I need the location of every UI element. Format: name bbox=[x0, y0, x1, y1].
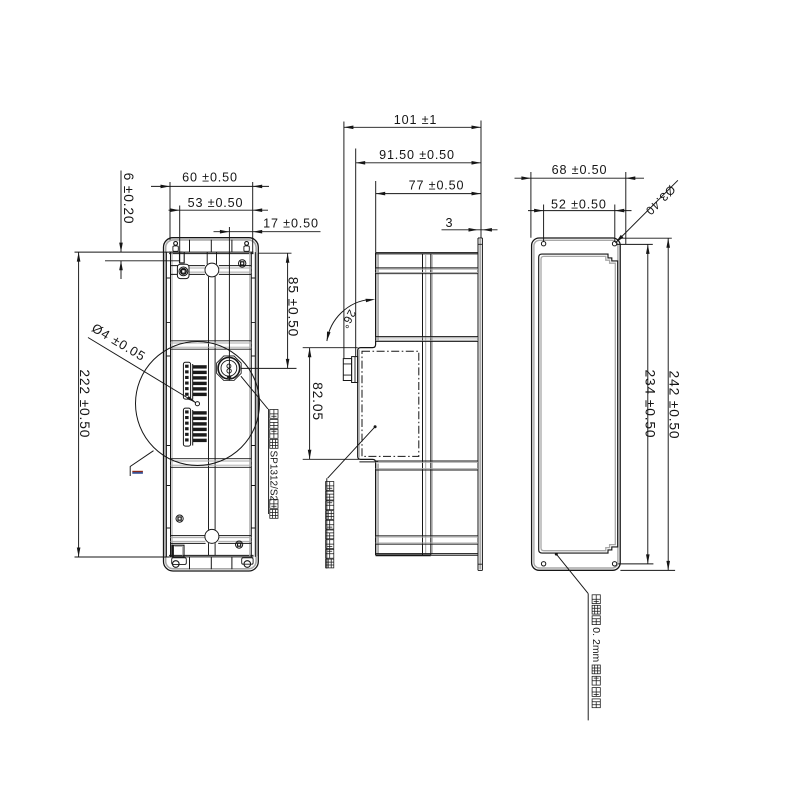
svg-text:60 ±0.50: 60 ±0.50 bbox=[182, 171, 238, 185]
svg-text:91.50 ±0.50: 91.50 ±0.50 bbox=[379, 148, 455, 162]
svg-text:234 ±0.50: 234 ±0.50 bbox=[643, 370, 658, 439]
svg-text:0. 2mm: 0. 2mm bbox=[590, 627, 602, 662]
svg-text:53 ±0.50: 53 ±0.50 bbox=[188, 196, 244, 210]
svg-text:82.05: 82.05 bbox=[310, 382, 325, 421]
svg-text:17 ±0.50: 17 ±0.50 bbox=[263, 217, 319, 231]
svg-text:242 ±0.50: 242 ±0.50 bbox=[666, 371, 681, 440]
svg-text:52 ±0.50: 52 ±0.50 bbox=[551, 197, 607, 211]
svg-text:222 ±0.50: 222 ±0.50 bbox=[77, 369, 92, 438]
svg-text:SP1312/S2: SP1312/S2 bbox=[268, 451, 279, 502]
svg-text:77 ±0.50: 77 ±0.50 bbox=[409, 179, 465, 193]
svg-text:85 ±0.50: 85 ±0.50 bbox=[285, 277, 300, 337]
svg-text:3: 3 bbox=[445, 216, 453, 230]
svg-text:6 ±0.20: 6 ±0.20 bbox=[121, 173, 136, 225]
svg-text:68 ±0.50: 68 ±0.50 bbox=[552, 163, 608, 177]
svg-text:101 ±1: 101 ±1 bbox=[394, 113, 438, 127]
